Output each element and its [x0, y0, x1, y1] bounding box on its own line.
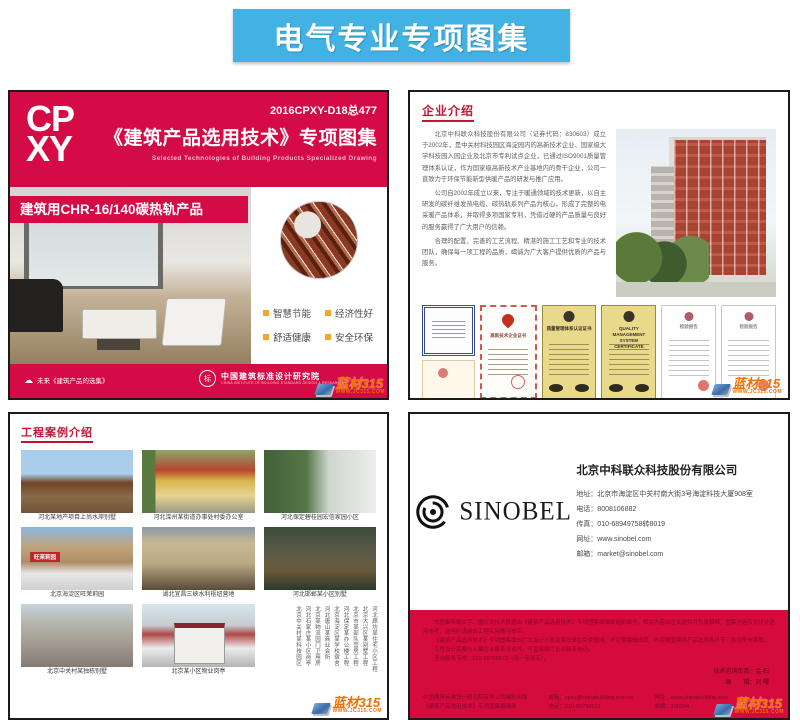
project-caption: 河北滦州某街道办事处村委办公室 [142, 515, 254, 522]
publisher-line: 中国建筑标准设计研究院有限公司编制出版 [423, 694, 528, 703]
trees-shape [616, 226, 709, 283]
feature-item: 经济性好 [325, 306, 383, 320]
jc315-watermark: 蓝材315WWW.JC315.COM [313, 696, 382, 714]
watermark-url: WWW.JC315.COM [734, 710, 784, 715]
project-caption: 北京某小区物业岗亭 [142, 669, 254, 676]
project-caption: 河北邯郸某小区别墅 [264, 592, 376, 599]
notice-line: 咨询服务专线：010-68799573（周一至周五）。 [423, 655, 775, 664]
feature-label: 舒适健康 [273, 330, 311, 344]
feature-label: 经济性好 [335, 306, 373, 320]
cover-footer-bar: ☁ 未来《建筑产品的选集》 标 中国建筑标准设计研究院 CHINA INSTIT… [10, 364, 387, 398]
page-title: 电气专业专项图集 [274, 14, 530, 58]
certificate-image [422, 360, 475, 399]
sinobel-logo-icon [414, 493, 452, 531]
cpxy-logo-line2: XY [26, 134, 74, 164]
atlas-title: 《建筑产品选用技术》专项图集 [104, 123, 377, 150]
certificate-hightech: 高新技术企业证书 [480, 305, 537, 399]
cpxy-logo: CP XY [26, 104, 74, 163]
project-case: 湖北宜昌三峡水利枢纽营地 [142, 527, 254, 599]
certificate-honor: 荣誉证书 [422, 305, 475, 399]
project-list-item: 北京大兴区某别墅工程 [361, 606, 367, 686]
jc315-watermark: 蓝材315WWW.JC315.COM [316, 377, 385, 395]
piano-shape [10, 279, 63, 332]
publisher-col: 中国建筑标准设计研究院有限公司编制出版 《建筑产品选用技术》专项图集编辑部 [423, 694, 528, 712]
project-list-item: 北京市某部队营房工程 [352, 606, 358, 686]
table-shape [97, 339, 140, 350]
notice-line: 《建筑产品选用技术》专项图集面向广大设计人员及建设单位免费赠阅，不定期编辑出版，… [423, 637, 775, 646]
cover-header: CP XY 2016CPXY-D18总477 《建筑产品选用技术》专项图集 Se… [10, 92, 387, 187]
publisher-line: 电话：010-68799573 [549, 703, 634, 712]
project-caption: 河北某地产项目上尚水岸别墅 [21, 515, 133, 522]
sofa-shape [82, 309, 156, 339]
cover-page-thumbnail[interactable]: CP XY 2016CPXY-D18总477 《建筑产品选用技术》专项图集 Se… [8, 90, 389, 400]
product-name-banner: 建筑用CHR-16/140碳热轨产品 [10, 196, 248, 223]
project-case: 北京中关村某独栋别墅 [21, 604, 133, 686]
book-icon [312, 703, 332, 714]
project-list-item: 河北廊坊某住宅小区工程 [371, 606, 377, 686]
certificate-image [422, 305, 475, 356]
project-caption: 北京海淀区旺茉莉园 [21, 592, 133, 599]
feature-item: 安全环保 [325, 330, 383, 344]
project-caption: 北京中关村某独栋别墅 [21, 669, 133, 676]
headquarters-building-photo [616, 129, 776, 297]
stamp-icon [549, 384, 563, 392]
bullet-square-icon [263, 334, 269, 340]
emblem-icon [684, 312, 693, 321]
sinobel-logo-text: SINOBEL [459, 497, 572, 526]
ground-shape [616, 282, 776, 297]
paragraph: 合理的配置、完善的工艺流程、精湛的施工工艺和专业的技术团队，确保每一项工程的品质… [422, 236, 606, 270]
project-list-item: 北京中关村某科技园区 [295, 606, 301, 686]
imprint-notice: 本图集所载文字、图片及技术数据由《建筑产品选用技术》专项图集编辑部组织编写，相关… [423, 619, 775, 664]
publisher-line: 《建筑产品选用技术》专项图集编辑部 [423, 703, 528, 712]
red-seal-icon [511, 375, 525, 389]
company-name: 北京中科联众科技股份有限公司 [576, 462, 774, 478]
feature-item: 智慧节能 [263, 306, 321, 320]
bullet-square-icon [325, 310, 331, 316]
atlas-code: 2016CPXY-D18总477 [104, 102, 377, 118]
project-case: 河北邯郸某小区别墅 [264, 527, 376, 599]
stamp-icon [609, 384, 623, 392]
credit-line: 技术咨询负责：金 石 [423, 667, 769, 677]
project-photo [264, 450, 376, 513]
contact-website: 网址：www.sinobel.com [576, 532, 774, 547]
emblem-icon [623, 311, 634, 322]
project-list-item: 河北保定某办公楼工程 [342, 606, 348, 686]
project-list-item: 北京海淀区某学校宿舍 [333, 606, 339, 686]
publisher-line: 邮箱：cpxy@chinabuilding.com.cn [549, 694, 634, 703]
jc315-watermark: 蓝材315WWW.JC315.COM [715, 697, 784, 715]
paragraph: 公司自2002年成立以来，专注于暖通领域的技术更新，以自主研发的碳纤维发热电缆、… [422, 188, 606, 233]
carbon-rail-product-photo [280, 201, 358, 279]
project-photo [264, 527, 376, 590]
project-caption: 湖北宜昌三峡水利枢纽营地 [142, 592, 254, 599]
certificate-iso-en: QUALITY MANAGEMENT SYSTEM CERTIFICATE [601, 305, 656, 399]
company-description: 北京中科联众科技股份有限公司（证券代码：830603）成立于2002年，是中关村… [422, 129, 606, 297]
project-photo: 旺茉莉园 [21, 527, 133, 590]
cloud-icon: ☁ [24, 376, 33, 385]
notice-line: 工程设计需要与入编企业联系洽谈时，可直接拨打企业联系电话。 [423, 646, 775, 655]
certificate-iso-cn: 质量管理体系认证证书 [542, 305, 597, 399]
feature-item: 舒适健康 [263, 330, 321, 344]
interior-photo: 建筑用CHR-16/140碳热轨产品 [10, 187, 251, 364]
chair-shape [162, 298, 227, 346]
project-case: 河北某地产项目上尚水岸别墅 [21, 450, 133, 522]
book-icon [712, 384, 732, 395]
notice-line: 本图集所载文字、图片及技术数据由《建筑产品选用技术》专项图集编辑部组织编写，相关… [423, 619, 775, 637]
emblem-icon [744, 312, 753, 321]
watermark-url: WWW.JC315.COM [335, 390, 385, 395]
red-seal-icon [698, 380, 709, 391]
credit-line: 编 辑：刘 曙 [423, 678, 769, 688]
contact-email: 邮箱：market@sinobel.com [576, 547, 774, 562]
certificate-test-report: 检验报告 [661, 305, 716, 399]
imprint-section: 本图集所载文字、图片及技术数据由《建筑产品选用技术》专项图集编辑部组织编写，相关… [410, 610, 788, 718]
watermark-url: WWW.JC315.COM [332, 709, 382, 714]
section-title: 工程案例介绍 [21, 424, 93, 443]
company-intro-page-thumbnail[interactable]: 企业介绍 北京中科联众科技股份有限公司（证券代码：830603）成立于2002年… [408, 90, 790, 400]
contact-phone: 电话：8008106882 [576, 502, 774, 517]
project-photo [21, 450, 133, 513]
emblem-icon [564, 311, 575, 322]
feature-label: 安全环保 [335, 330, 373, 344]
page-title-banner: 电气专业专项图集 [233, 9, 570, 62]
feature-label: 智慧节能 [273, 306, 311, 320]
institute-logo-icon: 标 [199, 370, 216, 387]
book-icon [315, 384, 335, 395]
project-photo [142, 527, 254, 590]
stamp-icon [635, 384, 649, 392]
paragraph: 北京中科联众科技股份有限公司（证券代码：830603）成立于2002年，是中关村… [422, 129, 606, 185]
project-caption: 河北保定碧桂园宏信家园小区 [264, 515, 376, 522]
building-sign: 旺茉莉园 [30, 552, 60, 562]
project-case: 北京某小区物业岗亭 [142, 604, 254, 686]
section-title: 企业介绍 [422, 102, 474, 122]
project-photo [142, 450, 254, 513]
footer-slogan: 未来《建筑产品的选集》 [37, 375, 109, 385]
project-photo [142, 604, 254, 667]
project-list-item: 北京某物流园门卫用房 [314, 606, 320, 686]
contact-fax: 传真：010-68949758转8019 [576, 517, 774, 532]
guard-booth-shape [174, 623, 225, 664]
project-case: 河北保定碧桂园宏信家园小区 [264, 450, 376, 522]
project-case: 河北滦州某街道办事处村委办公室 [142, 450, 254, 522]
project-photo [21, 604, 133, 667]
watermark-url: WWW.JC315.COM [732, 390, 782, 395]
publisher-contact-col: 邮箱：cpxy@chinabuilding.com.cn 电话：010-6879… [549, 694, 634, 712]
project-name-list: 河北廊坊某住宅小区工程 北京大兴区某别墅工程 北京市某部队营房工程 河北保定某办… [264, 604, 376, 686]
project-case: 旺茉莉园 北京海淀区旺茉莉园 [21, 527, 133, 599]
atlas-subtitle-en: Selected Technologies of Building Produc… [104, 155, 377, 162]
bullet-square-icon [325, 334, 331, 340]
project-list-item: 河北石家庄某小区岗亭 [304, 606, 310, 686]
project-cases-page-thumbnail[interactable]: 工程案例介绍 河北某地产项目上尚水岸别墅 河北滦州某街道办事处村委办公室 河北保… [8, 412, 389, 720]
contact-address: 地址：北京市海淀区中关村南大街3号海淀科技大厦908室 [576, 487, 774, 502]
bullet-square-icon [263, 310, 269, 316]
stamp-icon [575, 384, 589, 392]
jc315-watermark: 蓝材315WWW.JC315.COM [713, 377, 782, 395]
back-cover-page-thumbnail[interactable]: SINOBEL 北京中科联众科技股份有限公司 地址：北京市海淀区中关村南大街3号… [408, 412, 790, 720]
project-list-item: 河北唐山某商业会所 [323, 606, 329, 686]
torch-flame-icon [500, 312, 517, 329]
book-icon [714, 704, 734, 715]
page: 电气专业专项图集 CP XY 2016CPXY-D18总477 《建筑产品选用技… [0, 0, 800, 720]
